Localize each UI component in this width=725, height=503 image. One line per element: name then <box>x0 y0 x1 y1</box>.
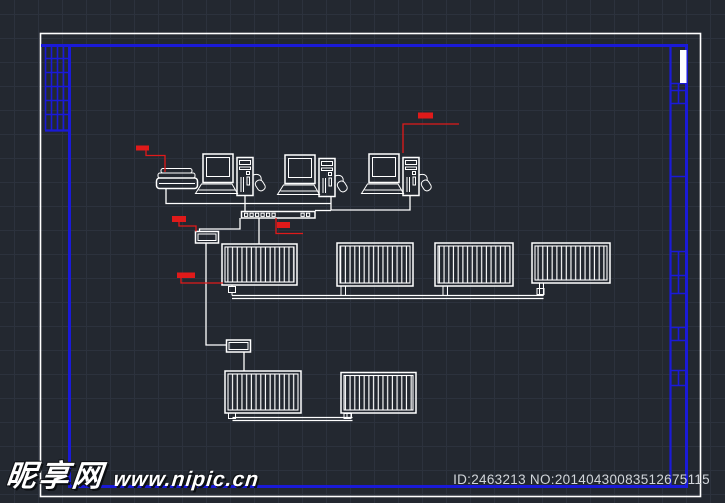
annotation-label-controller <box>172 216 186 222</box>
annotation-leader <box>179 222 196 232</box>
radiator-panel-6 <box>341 373 416 414</box>
annotation-leader <box>181 278 223 283</box>
monitor-outline <box>369 154 399 183</box>
monitor-screen <box>373 158 396 177</box>
valve-symbol <box>537 289 544 295</box>
controller-box-1 <box>196 232 219 244</box>
radiator-panel-1 <box>222 244 297 285</box>
schematic-drawing <box>0 0 725 503</box>
keyboard <box>362 184 404 194</box>
mouse <box>336 180 349 194</box>
watermark-site-url: www.nipic.cn <box>113 469 261 490</box>
watermark-site-name: 昵享网 <box>4 462 106 492</box>
network-cables <box>166 188 410 212</box>
workstation-1 <box>196 154 267 196</box>
monitor-outline <box>285 155 315 184</box>
workstation-3 <box>362 154 433 196</box>
title-strip-marker <box>680 50 687 83</box>
network-hub <box>242 212 316 219</box>
title-strip <box>671 50 687 386</box>
monitor-screen <box>289 159 312 178</box>
radiator-panel-5 <box>225 371 301 413</box>
radiator-panel-2 <box>337 243 413 286</box>
cad-canvas: 昵享网 www.nipic.cn ID:2463213 NO:201404300… <box>0 0 725 503</box>
radiator-panel-3 <box>435 243 513 286</box>
valve-symbol <box>229 287 236 293</box>
annotation-leader <box>403 124 459 153</box>
workstation-2 <box>278 155 349 197</box>
watermark: 昵享网 www.nipic.cn <box>4 462 261 492</box>
revision-table <box>45 45 69 131</box>
mouse <box>254 179 267 193</box>
mouse <box>420 179 433 193</box>
hub-ports <box>245 213 310 216</box>
pipe-run-lower <box>229 413 353 421</box>
monitor-outline <box>203 154 233 183</box>
annotation-label-hub <box>277 222 290 228</box>
annotation-label-radiator <box>177 273 195 279</box>
printer <box>157 169 198 189</box>
monitor-screen <box>207 158 230 177</box>
image-id-text: ID:2463213 NO:20140430083512675115 <box>453 472 710 487</box>
controller-box-2 <box>227 340 251 352</box>
annotation-label-printer <box>136 146 149 151</box>
annotation-label-workstation <box>418 113 433 119</box>
radiator-panel-4 <box>532 243 610 283</box>
keyboard <box>278 185 320 195</box>
keyboard <box>196 184 238 194</box>
